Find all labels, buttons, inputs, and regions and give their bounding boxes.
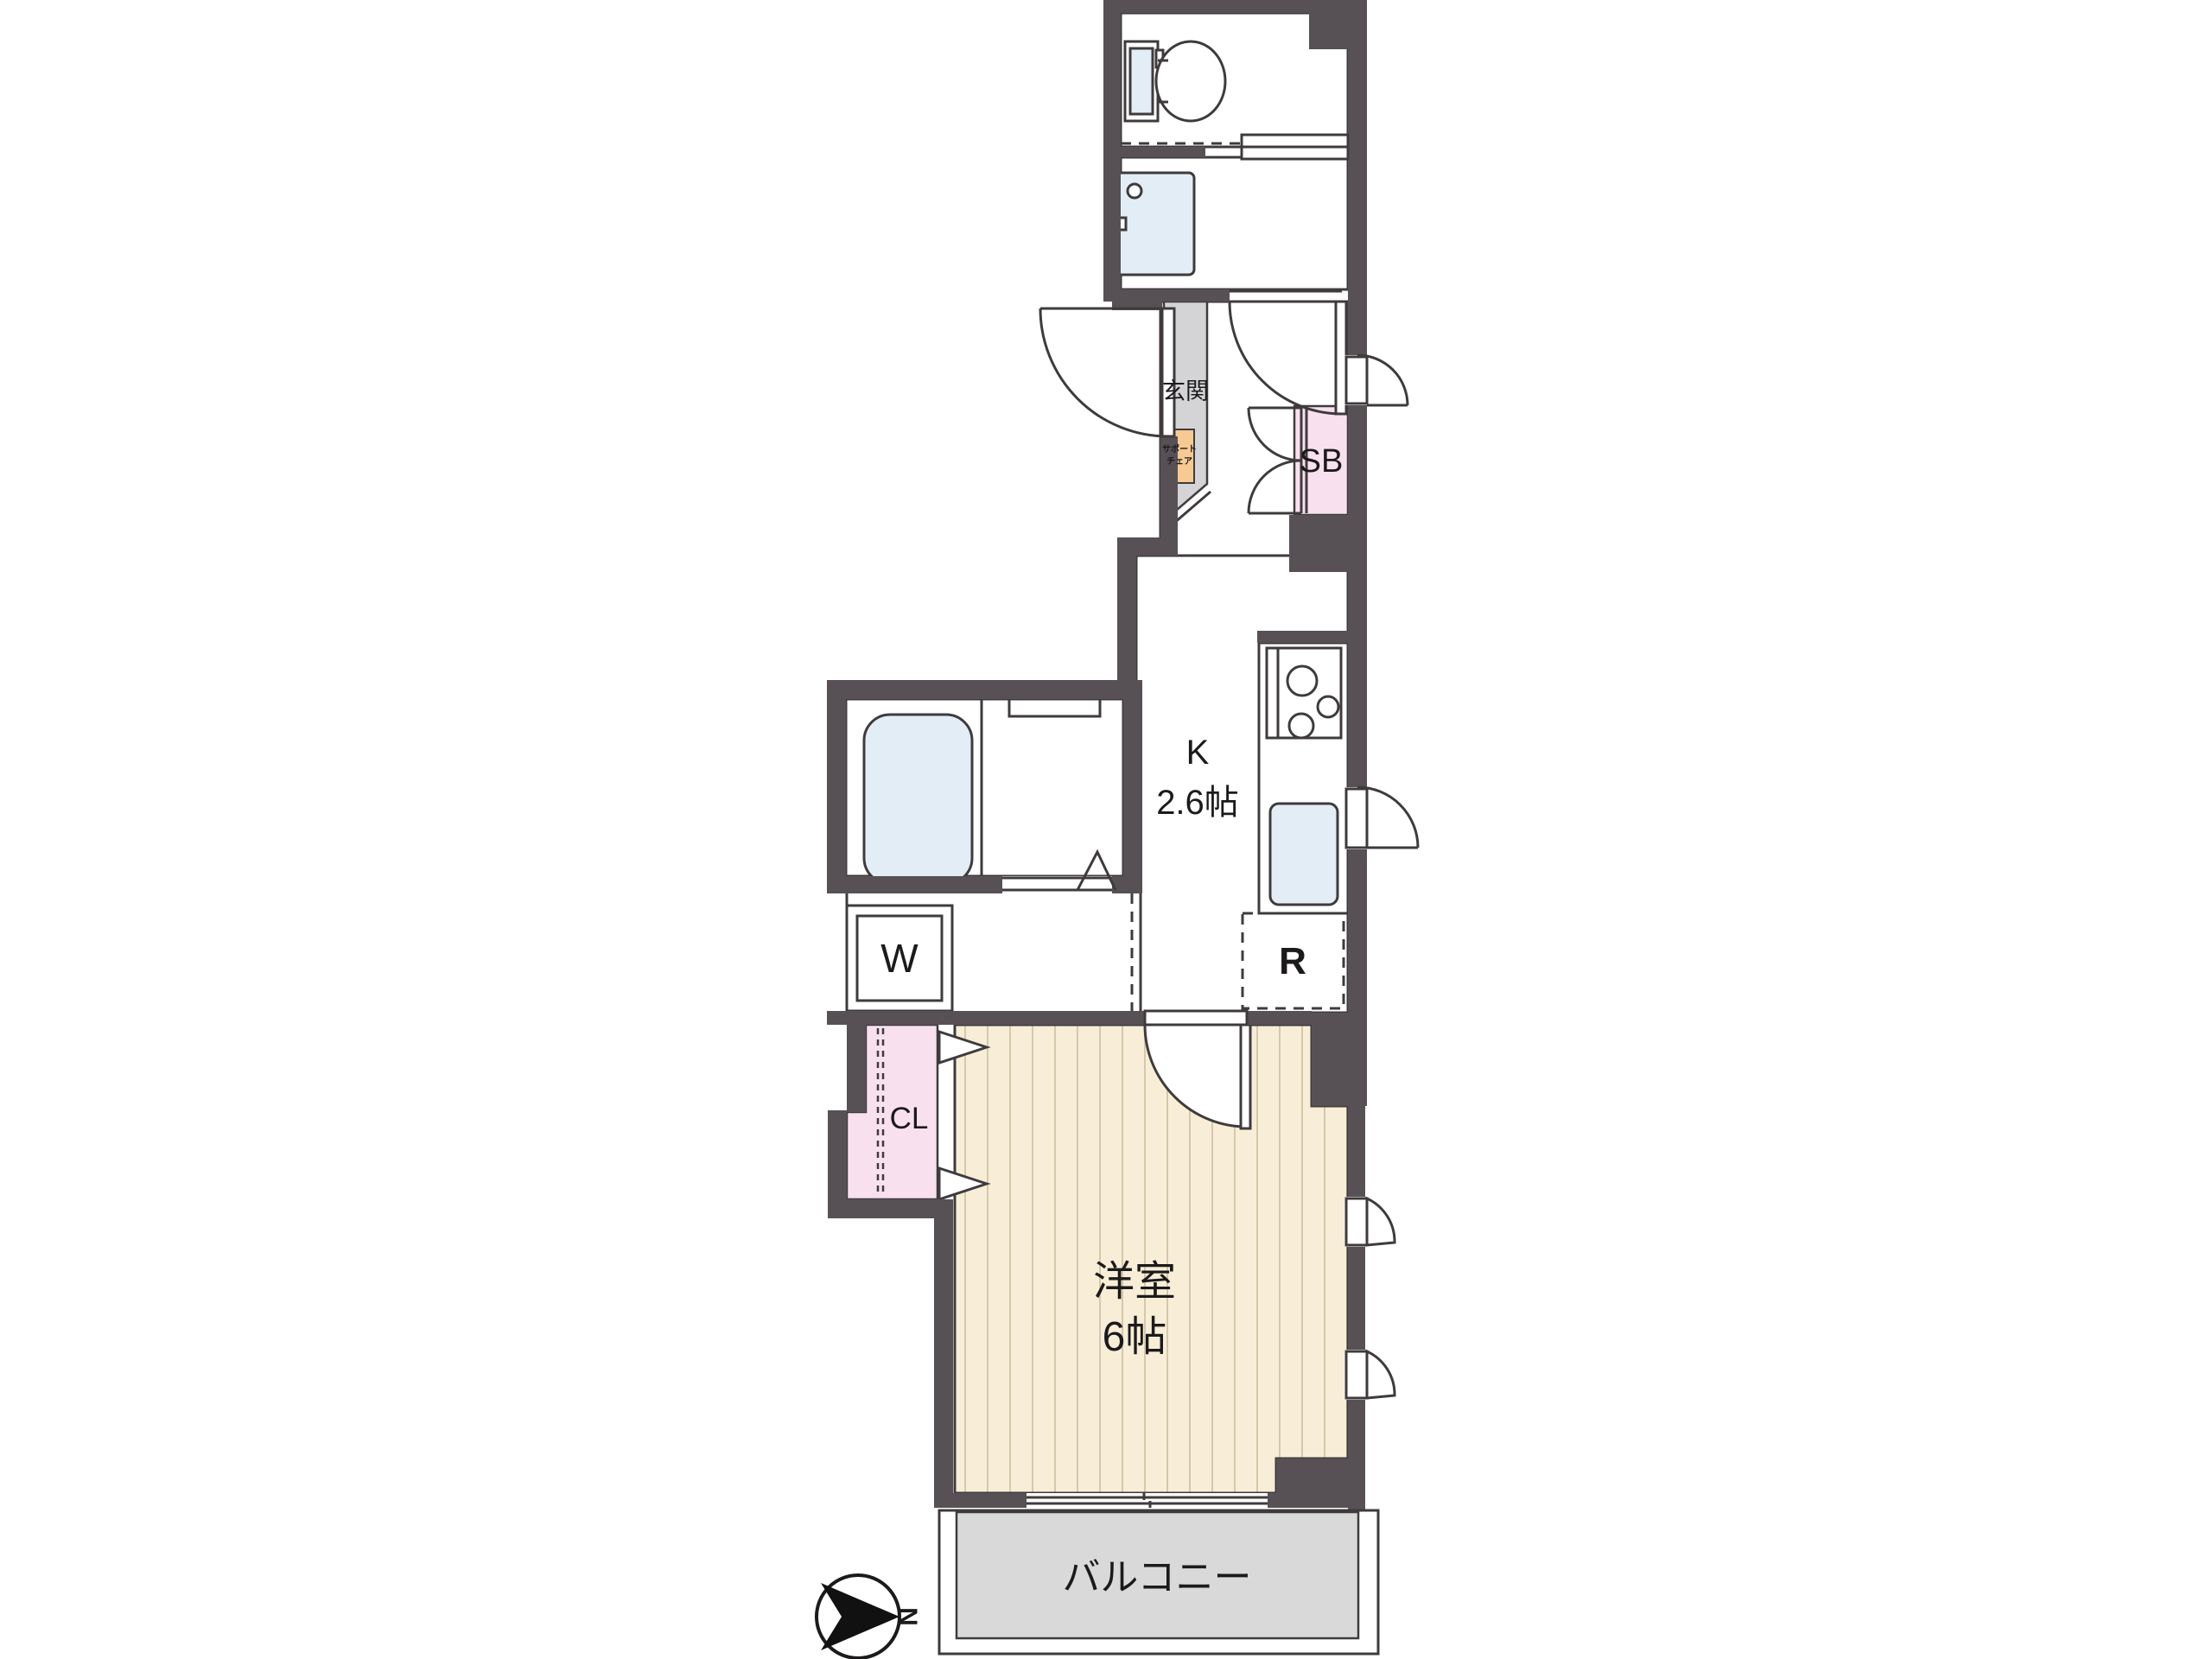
toilet-door xyxy=(1242,135,1348,159)
closet-label: CL xyxy=(890,1102,929,1135)
hall-west-door-arc xyxy=(1040,308,1168,436)
hall-west-door xyxy=(1040,308,1174,436)
balcony-label: バルコニー xyxy=(1062,1556,1251,1599)
kitchen-service-door xyxy=(1344,787,1418,849)
burner-small xyxy=(1318,696,1338,717)
washer-label: W xyxy=(880,936,918,981)
balcony-sliding-window xyxy=(1027,1493,1268,1508)
entrance-door xyxy=(1344,355,1408,405)
kitchen-label-1: K xyxy=(1186,734,1210,772)
support-chair-label-2: チェア xyxy=(1166,456,1192,467)
floor-plan-drawing: 玄関 サポート チェア SB K 2.6帖 W R CL 洋室 6帖 バルコニー… xyxy=(0,0,2212,1659)
washbasin xyxy=(1109,173,1194,275)
room-window-lower xyxy=(1344,1350,1395,1400)
north-compass-icon xyxy=(817,1575,899,1658)
burner-large xyxy=(1287,666,1317,696)
kitchen-label-2: 2.6帖 xyxy=(1156,784,1239,822)
window-flap-arc xyxy=(1367,1351,1395,1398)
bath-counter xyxy=(1009,699,1100,716)
refrigerator-label: R xyxy=(1279,940,1306,982)
bathtub xyxy=(864,715,972,884)
room-window-upper xyxy=(1344,1197,1395,1247)
support-chair-label-1: サポート xyxy=(1162,443,1197,454)
floor-plan-page: 玄関 サポート チェア SB K 2.6帖 W R CL 洋室 6帖 バルコニー… xyxy=(0,0,2212,1659)
kitchen-counter xyxy=(1259,643,1348,913)
genkan-label: 玄関 xyxy=(1162,378,1209,404)
room-doorway-band xyxy=(1145,1011,1247,1025)
burner-medium xyxy=(1289,714,1313,738)
toilet-fixture xyxy=(1125,41,1225,121)
compass-north-label: N xyxy=(893,1607,922,1626)
window-flap-arc xyxy=(1367,1198,1395,1245)
shoe-box-label: SB xyxy=(1300,443,1344,480)
western-room-label-1: 洋室 xyxy=(1093,1259,1176,1305)
western-room-label-2: 6帖 xyxy=(1103,1314,1167,1360)
kitchen-sink xyxy=(1270,804,1338,905)
